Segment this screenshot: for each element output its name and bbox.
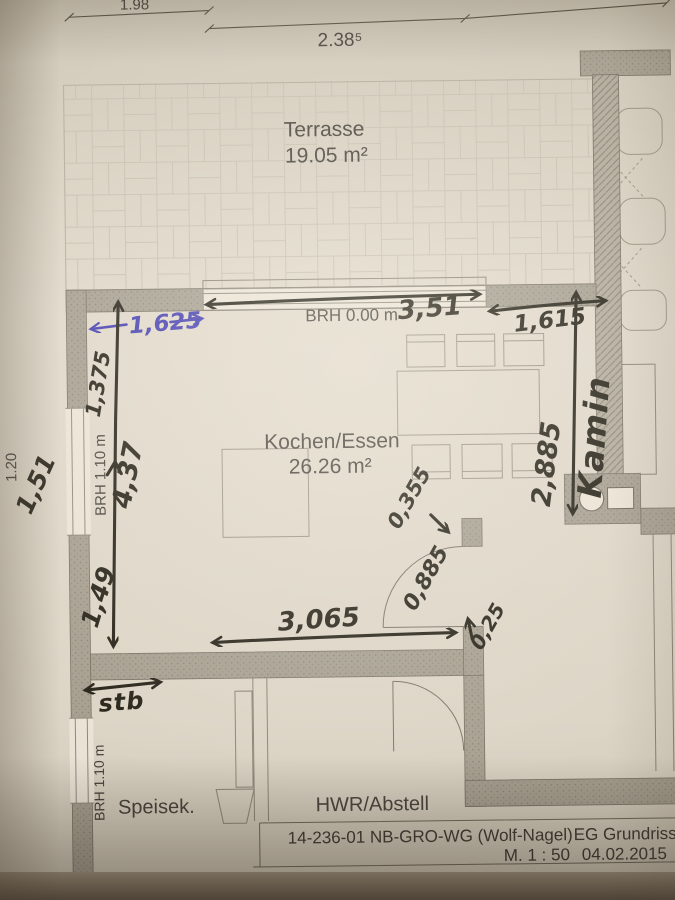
title-scale: M. 1 : 50 bbox=[504, 845, 570, 865]
room-label-terrasse: Terrasse bbox=[284, 118, 365, 142]
wall-top-right bbox=[580, 50, 670, 76]
title-date: 04.02.2015 bbox=[582, 844, 667, 864]
title-drawing: EG Grundriss bbox=[574, 824, 675, 844]
left-window-opening bbox=[65, 408, 91, 535]
wall-room-bottom bbox=[90, 649, 469, 680]
room-area-terrasse: 19.05 m² bbox=[285, 144, 368, 168]
dim-left-margin: 1.20 bbox=[3, 453, 20, 482]
wall-hwr-bottom bbox=[465, 778, 675, 807]
floor-plan-photo: 1.98 2.38⁵ 1.20 Terrasse 19.05 m² Kochen… bbox=[0, 0, 675, 900]
label-brh-terrace-door: BRH 0.00 m bbox=[305, 305, 398, 325]
floor-plan-drawing: 1.98 2.38⁵ 1.20 Terrasse 19.05 m² Kochen… bbox=[0, 0, 675, 900]
dim-bottom-opening: 3,065 bbox=[277, 602, 361, 637]
photo-bottom-shadow bbox=[0, 872, 675, 900]
room-area-kochen: 26.26 m² bbox=[289, 455, 372, 479]
room-label-speisek: Speisek. bbox=[118, 796, 195, 819]
title-project: 14-236-01 NB-GRO-WG (Wolf-Nagel) bbox=[288, 825, 573, 847]
dim-top-right: 2.38⁵ bbox=[317, 30, 362, 52]
room-label-hwr: HWR/Abstell bbox=[316, 793, 430, 816]
wall-door-jamb-top bbox=[462, 518, 482, 546]
note-stb: stb bbox=[97, 686, 145, 718]
wall-kamin-band bbox=[641, 508, 675, 534]
terrace-area bbox=[64, 79, 595, 290]
dim-top-left: 1.98 bbox=[120, 0, 149, 14]
label-brh-speisek-window: BRH 1.10 m bbox=[91, 745, 108, 821]
dim-terrace-door-width: 3,51 bbox=[397, 291, 463, 326]
room-label-kochen: Kochen/Essen bbox=[264, 429, 400, 454]
